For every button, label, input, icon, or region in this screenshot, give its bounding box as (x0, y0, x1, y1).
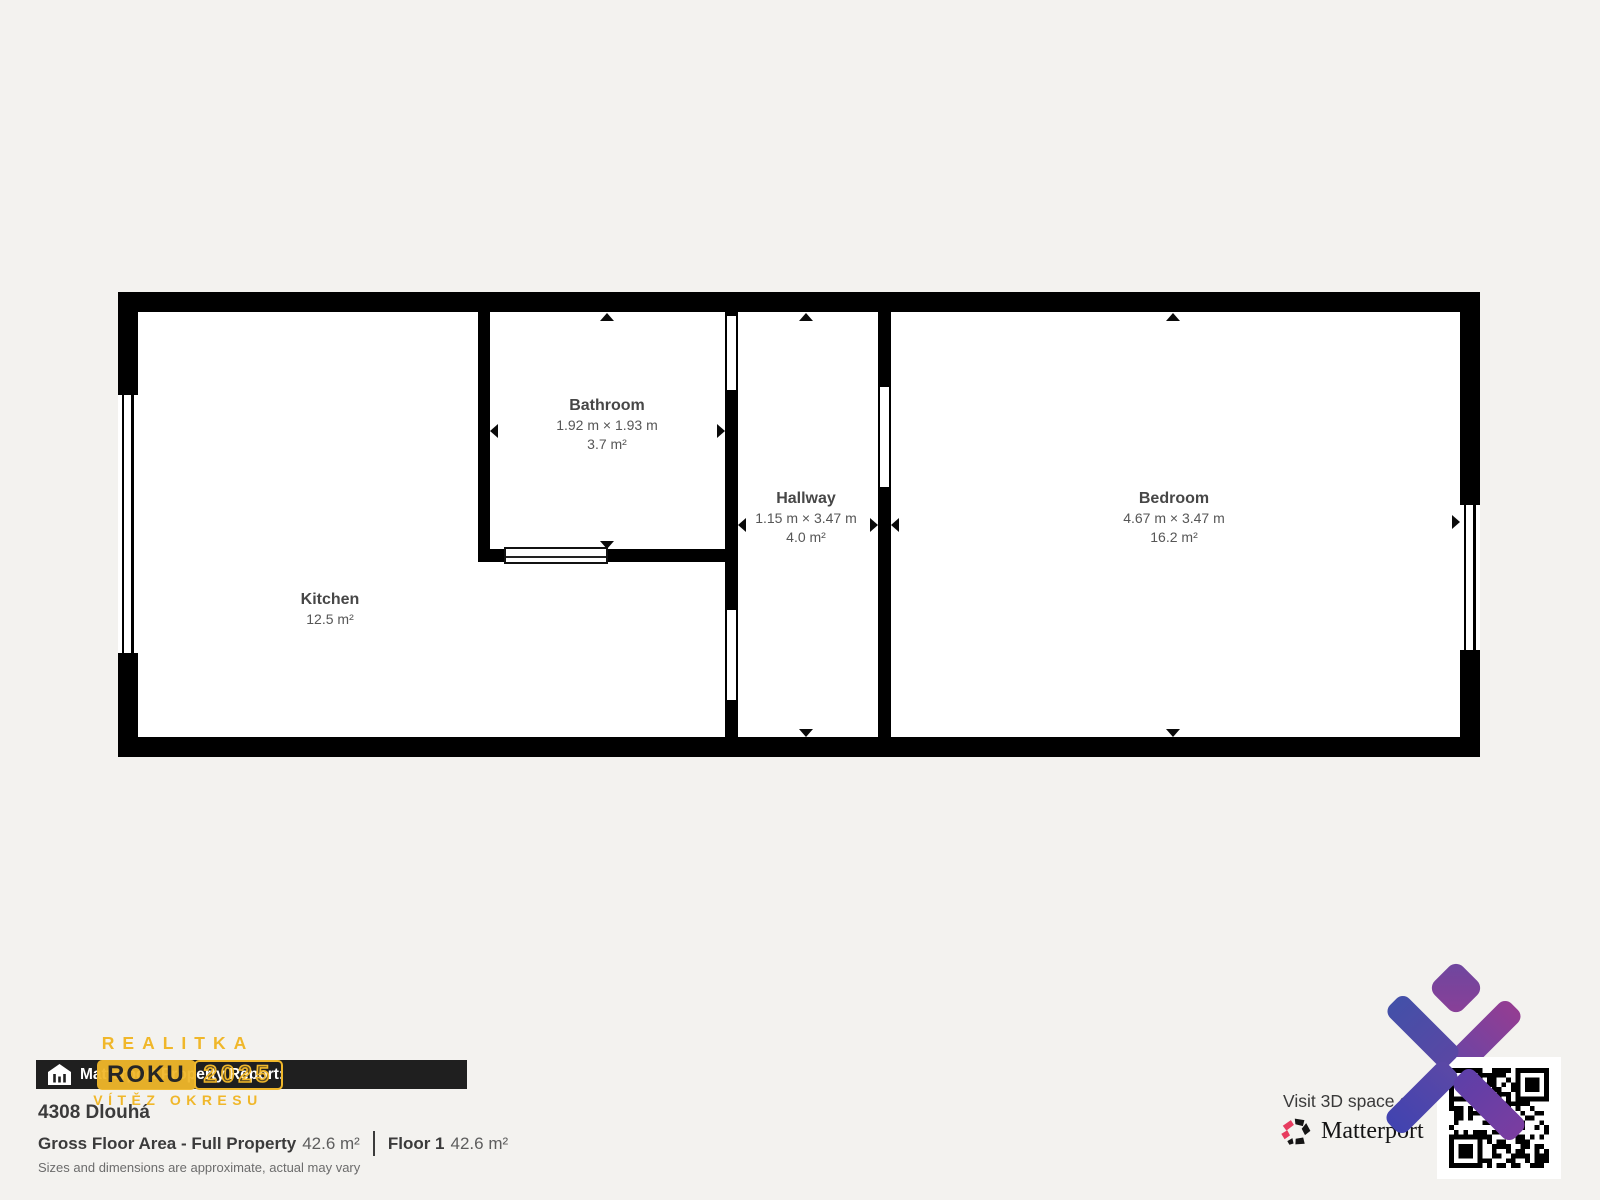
room-name: Bathroom (497, 396, 717, 416)
room-area: 4.0 m² (698, 528, 914, 547)
room-area: 3.7 m² (497, 435, 717, 454)
floor-value: 42.6 m² (451, 1134, 509, 1154)
wall-outer-top (118, 292, 1480, 312)
wall-bathroom-left (478, 312, 490, 562)
window-symbol-right (1460, 505, 1480, 650)
house-chart-icon (48, 1064, 71, 1085)
room-dimensions: 1.15 m × 3.47 m (698, 509, 914, 528)
room-label-hallway: Hallway 1.15 m × 3.47 m 4.0 m² (698, 489, 914, 547)
door-opening-hallway-bedroom (880, 387, 889, 487)
award-badge-line3: VÍTĚZ OKRESU (90, 1092, 266, 1108)
gross-floor-area-label: Gross Floor Area - Full Property (38, 1134, 296, 1154)
door-opening-bathroom-hallway (727, 316, 736, 390)
dimension-arrow-up (600, 313, 614, 321)
dimension-arrow-down (600, 541, 614, 549)
matterport-floorplan-report-page: { "page": {"background": "#f3f2ef", "wal… (0, 0, 1600, 1200)
award-badge-2025: 2025 (194, 1060, 283, 1090)
room-name: Hallway (698, 489, 914, 509)
room-label-kitchen: Kitchen 12.5 m² (220, 590, 440, 629)
gross-floor-area-value: 42.6 m² (302, 1134, 360, 1154)
purple-x-diamond-logo-head (1428, 960, 1485, 1017)
dimension-arrow-right (717, 424, 725, 438)
room-label-bathroom: Bathroom 1.92 m × 1.93 m 3.7 m² (497, 396, 717, 454)
window-symbol-left (118, 395, 138, 653)
room-label-bedroom: Bedroom 4.67 m × 3.47 m 16.2 m² (1064, 489, 1284, 547)
dimension-arrow-right (1452, 515, 1460, 529)
room-dimensions: 1.92 m × 1.93 m (497, 416, 717, 435)
room-area: 12.5 m² (220, 610, 440, 629)
award-badge-roku: ROKU (97, 1060, 196, 1090)
award-badge-line1: REALITKA (90, 1033, 266, 1054)
matterport-pinwheel-icon (1278, 1115, 1314, 1148)
room-name: Bedroom (1064, 489, 1284, 509)
stats-separator (373, 1131, 375, 1156)
disclaimer-text: Sizes and dimensions are approximate, ac… (38, 1160, 360, 1175)
floor-label: Floor 1 (388, 1134, 445, 1154)
floor-area-stats: Gross Floor Area - Full Property 42.6 m²… (38, 1131, 508, 1156)
sliding-door-symbol (504, 547, 608, 564)
wall-outer-bottom (118, 737, 1480, 757)
dimension-arrow-up (1166, 313, 1180, 321)
room-area: 16.2 m² (1064, 528, 1284, 547)
door-opening-kitchen-hallway (727, 610, 736, 700)
award-badge-line2: ROKU 2025 (97, 1060, 285, 1090)
room-name: Kitchen (220, 590, 440, 610)
dimension-arrow-down (799, 729, 813, 737)
room-dimensions: 4.67 m × 3.47 m (1064, 509, 1284, 528)
dimension-arrow-down (1166, 729, 1180, 737)
dimension-arrow-up (799, 313, 813, 321)
